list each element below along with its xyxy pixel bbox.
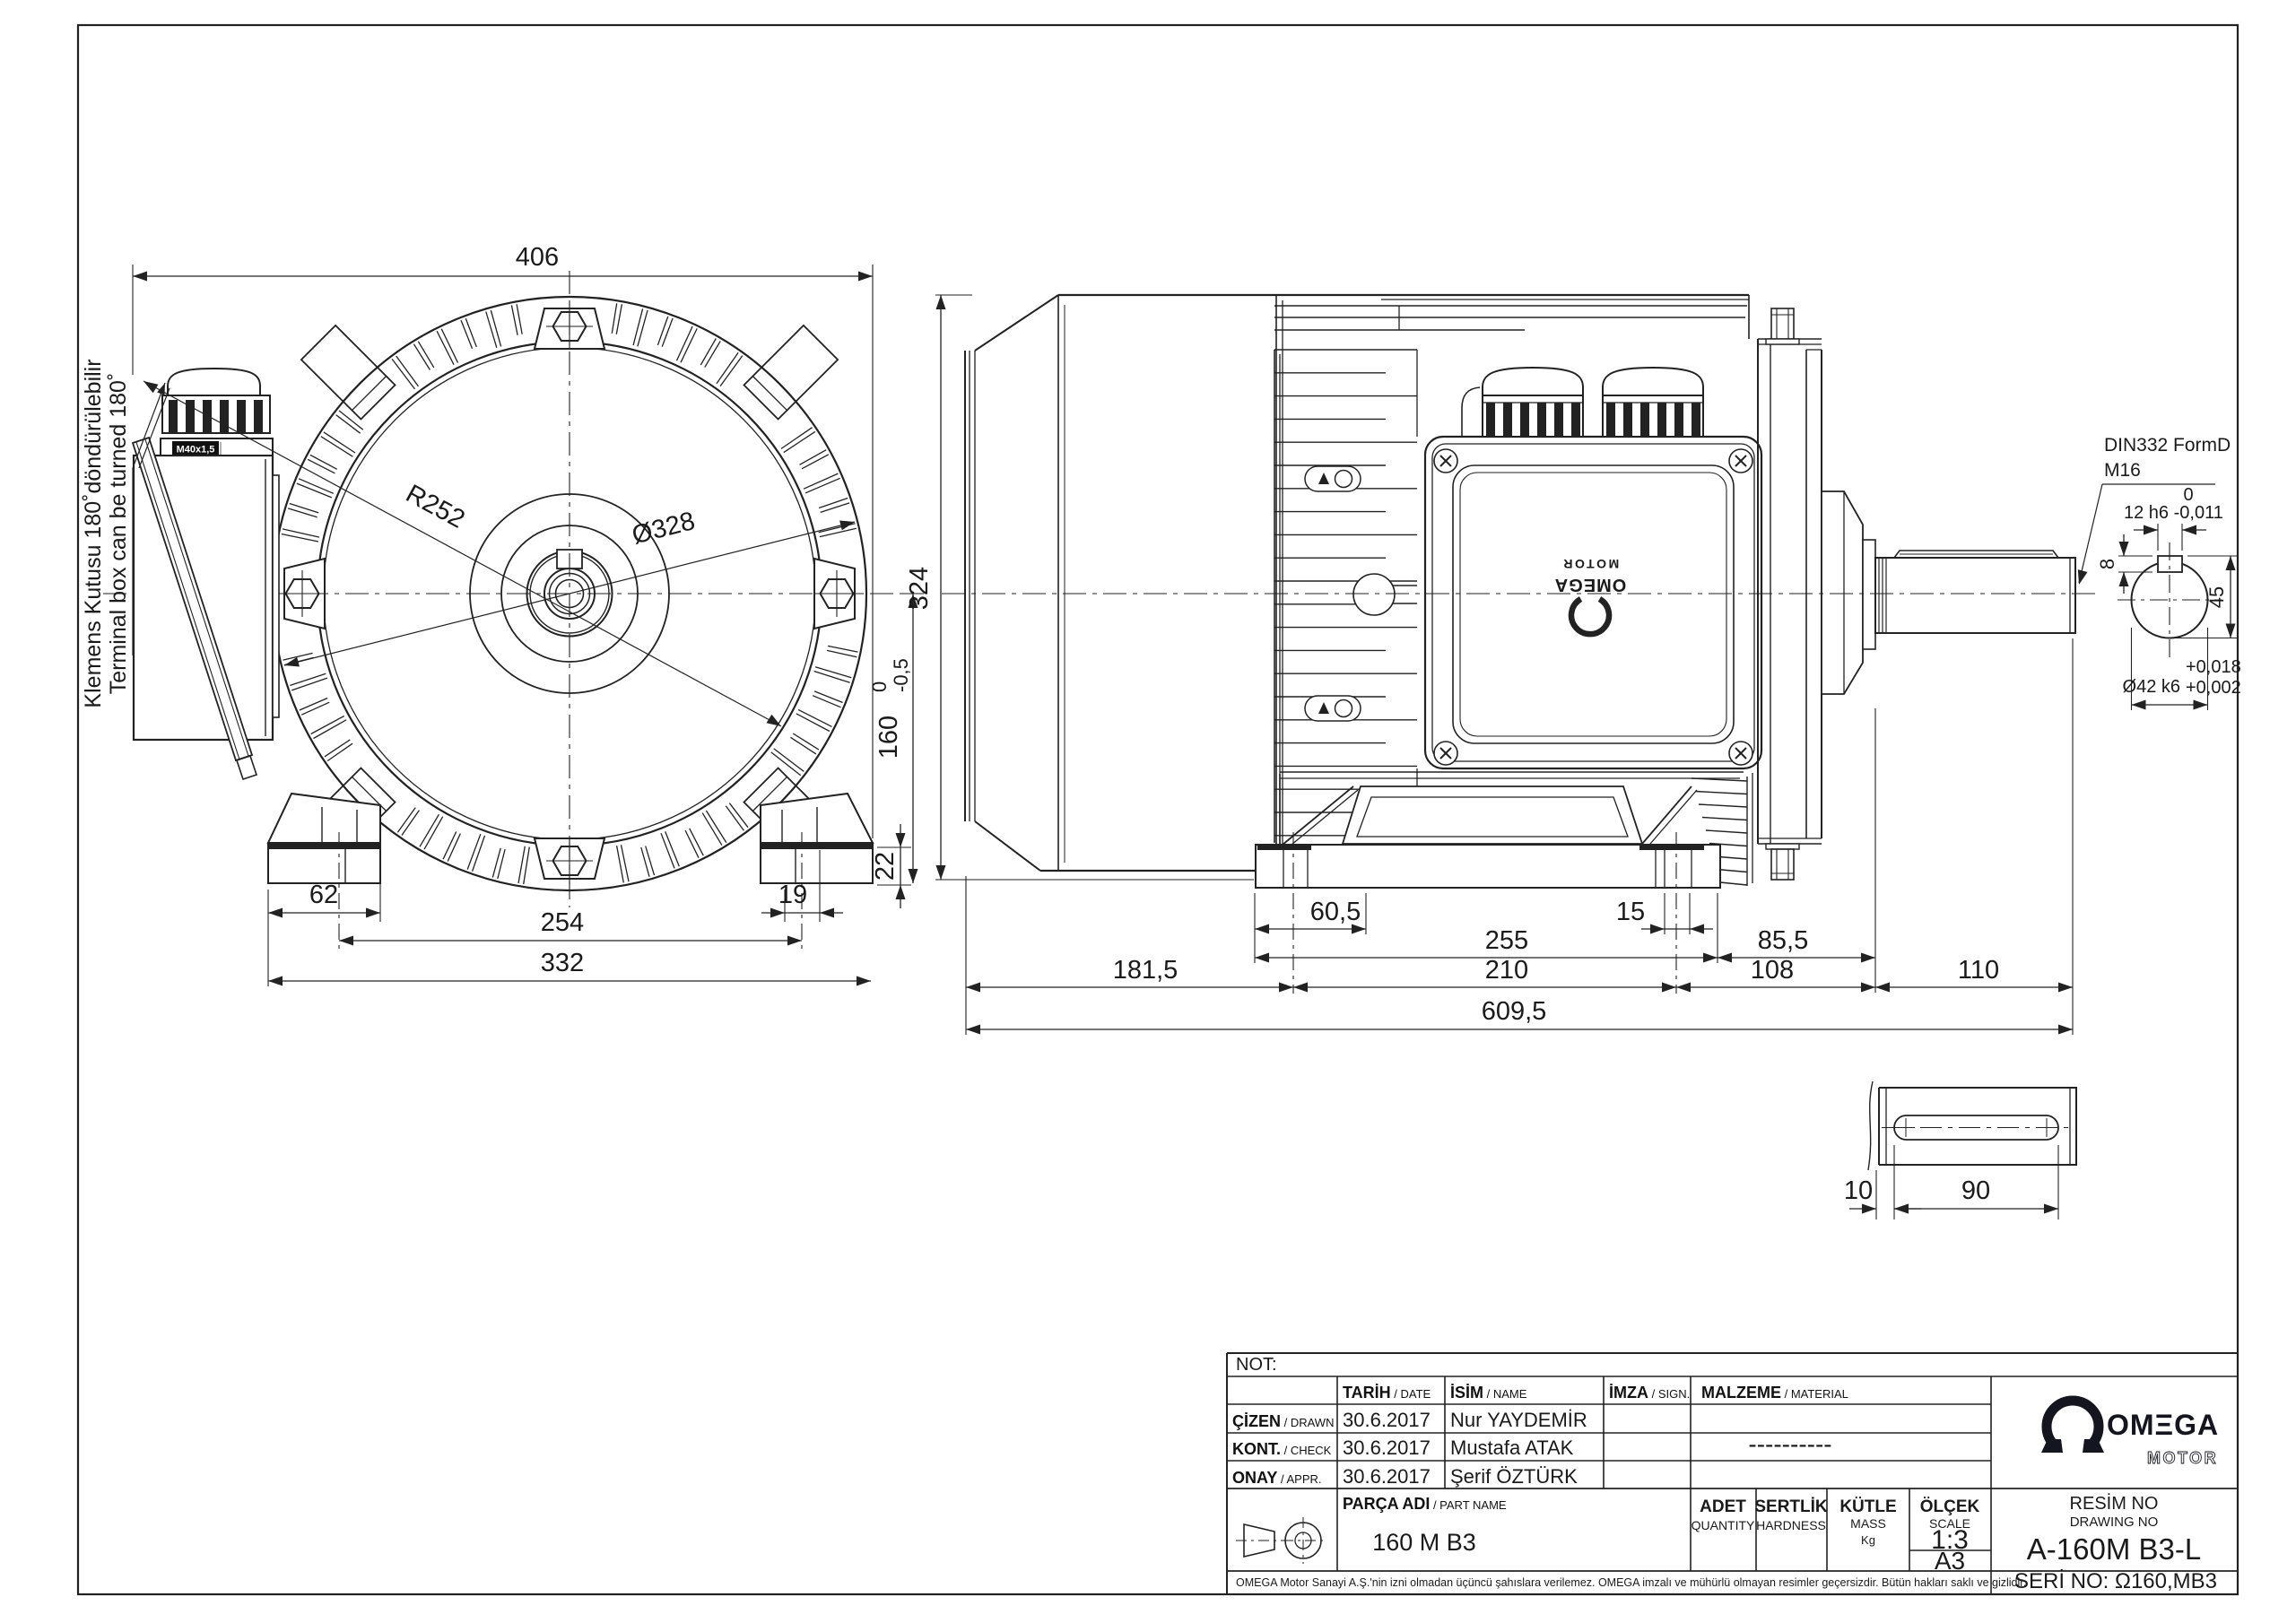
svg-text:----------: ---------- [1748,1430,1831,1458]
svg-text:Şerif ÖZTÜRK: Şerif ÖZTÜRK [1450,1465,1578,1488]
svg-text:160 M B3: 160 M B3 [1372,1529,1476,1556]
svg-text:90: 90 [1961,1176,1990,1205]
svg-text:MOTOR: MOTOR [2147,1449,2218,1467]
svg-text:RESİM NO: RESİM NO [2070,1493,2159,1514]
svg-text:DRAWING NO: DRAWING NO [2070,1515,2159,1530]
svg-text:60,5: 60,5 [1310,898,1361,926]
svg-text:QUANTITY: QUANTITY [1692,1518,1755,1532]
svg-text:KÜTLE: KÜTLE [1839,1497,1896,1516]
svg-text:110: 110 [1958,956,1999,985]
svg-text:0: 0 [868,681,891,692]
svg-text:12 h6 -0,011: 12 h6 -0,011 [2124,503,2223,523]
svg-text:Mustafa ATAK: Mustafa ATAK [1450,1436,1574,1459]
svg-text:Klemens Kutusu 180˚döndürülebi: Klemens Kutusu 180˚döndürülebilir [81,359,106,707]
svg-text:0: 0 [2183,485,2193,505]
svg-text:62: 62 [309,881,338,909]
svg-text:332: 332 [541,949,584,977]
svg-text:30.6.2017: 30.6.2017 [1343,1409,1431,1431]
svg-text:22: 22 [871,852,900,881]
svg-text:ADET: ADET [1700,1497,1746,1516]
svg-text:210: 210 [1485,956,1528,985]
svg-text:SERİ NO: Ω160,MB3: SERİ NO: Ω160,MB3 [2014,1569,2217,1593]
svg-text:324: 324 [905,567,934,610]
svg-text:Nur YAYDEMİR: Nur YAYDEMİR [1450,1409,1587,1431]
svg-text:181,5: 181,5 [1113,956,1178,985]
svg-text:8: 8 [2096,559,2118,569]
svg-text:OMΞGA: OMΞGA [2107,1409,2219,1441]
svg-text:ÖLÇEK: ÖLÇEK [1920,1497,1980,1516]
svg-text:255: 255 [1485,926,1528,955]
svg-text:Kg: Kg [1861,1533,1875,1547]
svg-text:+0,002: +0,002 [2186,678,2241,698]
svg-text:108: 108 [1751,956,1794,985]
svg-text:Ø42 k6: Ø42 k6 [2123,677,2180,697]
svg-text:45: 45 [2205,586,2228,608]
svg-text:HARDNESS: HARDNESS [1756,1518,1826,1532]
svg-text:160: 160 [874,716,903,759]
svg-text:OMEGA Motor Sanayi A.Ş.'nin iz: OMEGA Motor Sanayi A.Ş.'nin izni olmadan… [1236,1576,2026,1589]
svg-text:M40x1,5: M40x1,5 [177,445,215,456]
svg-text:MASS: MASS [1850,1516,1886,1531]
svg-text:30.6.2017: 30.6.2017 [1343,1465,1431,1488]
svg-text:85,5: 85,5 [1758,926,1808,955]
svg-text:OMEGA: OMEGA [1554,575,1627,595]
svg-text:M16: M16 [2104,460,2141,481]
svg-text:609,5: 609,5 [1482,997,1547,1026]
svg-text:A3: A3 [1935,1547,1965,1575]
svg-text:+0,018: +0,018 [2186,657,2241,677]
svg-text:19: 19 [778,881,807,909]
svg-text:30.6.2017: 30.6.2017 [1343,1436,1431,1459]
svg-text:SERTLİK: SERTLİK [1754,1497,1828,1516]
svg-text:-0,5: -0,5 [890,658,912,692]
svg-text:15: 15 [1616,898,1645,926]
svg-text:DIN332 FormD: DIN332 FormD [2104,435,2231,456]
svg-text:10: 10 [1844,1176,1873,1205]
svg-text:NOT:: NOT: [1236,1355,1277,1375]
svg-text:406: 406 [516,243,559,272]
svg-text:MOTOR: MOTOR [1561,557,1619,571]
svg-text:254: 254 [541,908,584,937]
svg-text:Terminal box can be turned 180: Terminal box can be turned 180˚ [106,373,131,695]
svg-text:A-160M B3-L: A-160M B3-L [2027,1532,2201,1566]
